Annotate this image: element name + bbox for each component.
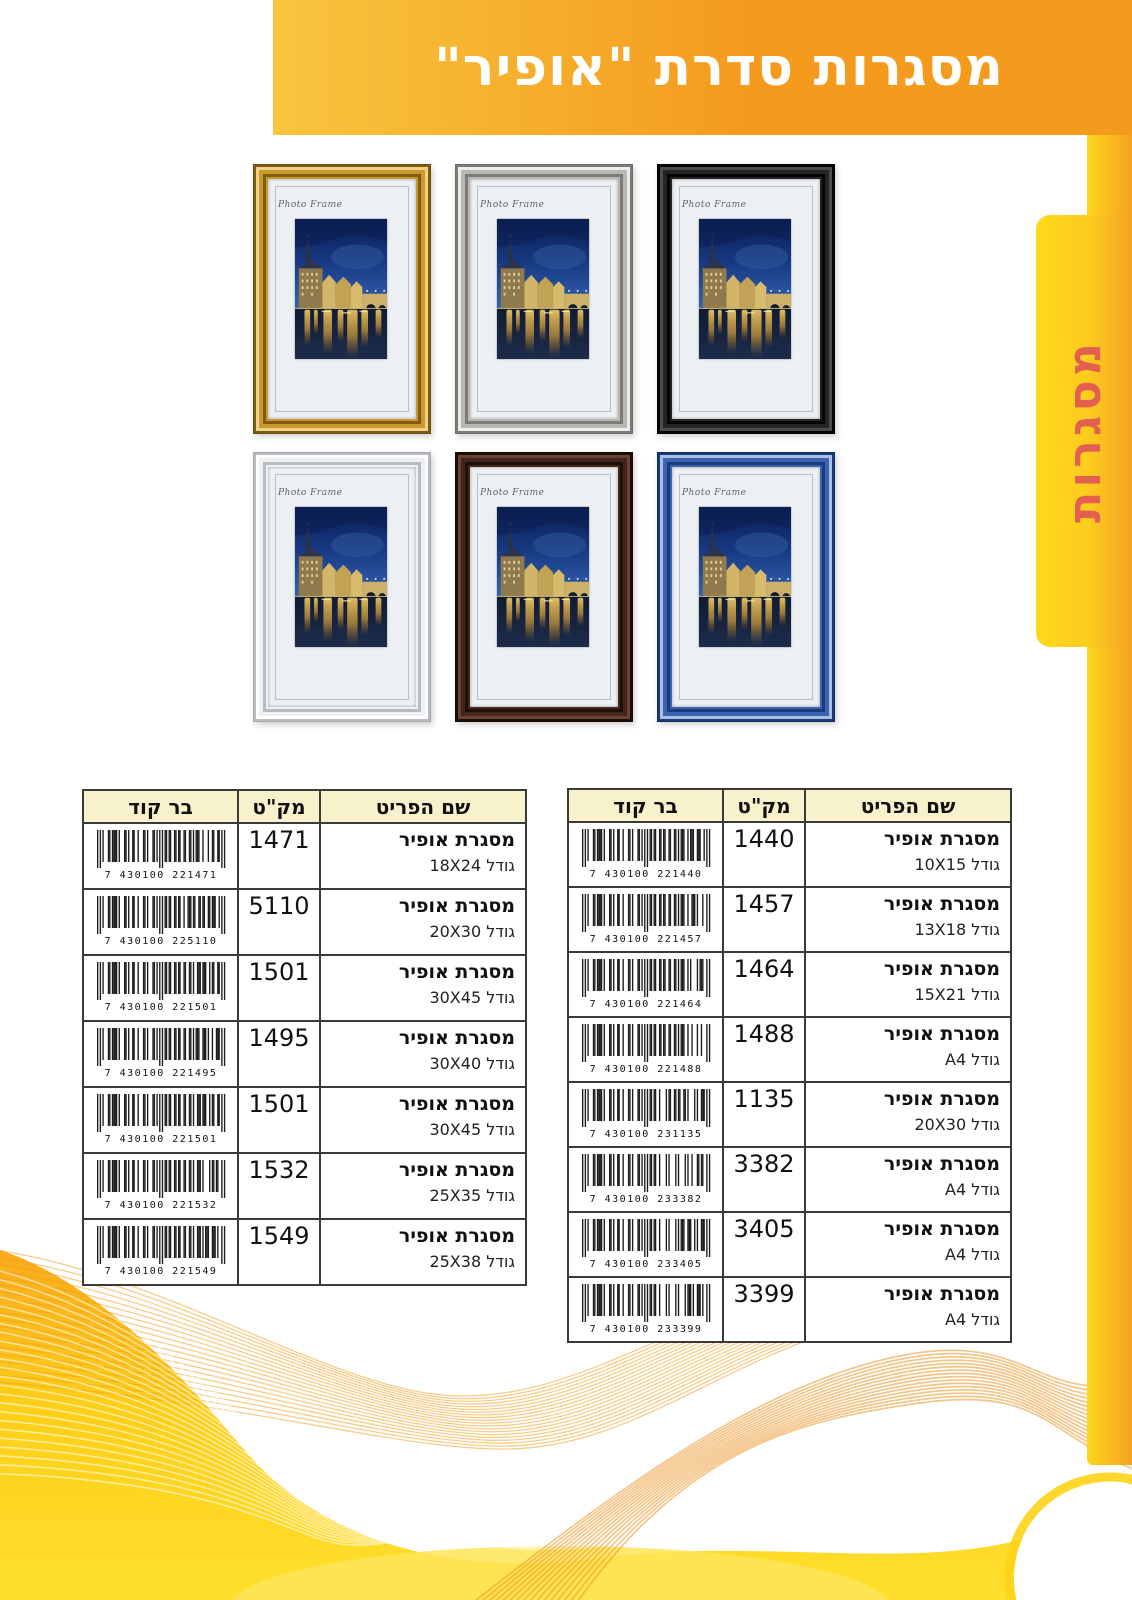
frame-photo-wrap: [295, 507, 387, 647]
barcode-image: 7 430100 231135: [579, 1087, 713, 1139]
wave-line: [0, 1416, 1132, 1536]
barcode-cell: 7 430100 221495: [83, 1021, 238, 1087]
item-size: גודל 25X38: [323, 1252, 515, 1271]
col-header-item: שם הפריט: [320, 790, 526, 823]
category-tab: מסגרות: [1036, 215, 1132, 647]
products-table-left: שם הפריטמק"טבר קודמסגרת אופירגודל 18X241…: [82, 789, 527, 1286]
svg-text:7 430100 221495: 7 430100 221495: [104, 1068, 217, 1078]
svg-text:7 430100 221501: 7 430100 221501: [104, 1002, 217, 1012]
wave-line: [561, 1393, 1132, 1600]
frame-photo: [497, 507, 589, 647]
wave-line: [0, 1383, 1132, 1535]
item-size: גודל A4: [808, 1050, 1000, 1069]
wave-line: [505, 1367, 1132, 1600]
table-row: מסגרת אופירגודל 10X151440 7 430100 22144…: [568, 822, 1011, 887]
frame-mat: Photo Frame: [268, 467, 416, 707]
svg-text:7 430100 221488: 7 430100 221488: [589, 1064, 702, 1074]
wave-line: [0, 1331, 824, 1446]
item-size: גודל 30X45: [323, 1120, 515, 1139]
frame-photo: [295, 507, 387, 647]
frame-photo-wrap: [295, 219, 387, 359]
sku-cell: 5110: [238, 889, 320, 955]
frame-mat: Photo Frame: [268, 179, 416, 419]
frames-gallery: Photo Frame Photo Frame: [253, 164, 838, 740]
frame-photo-wrap: [699, 507, 791, 647]
item-name-cell: מסגרת אופירגודל 13X18: [805, 887, 1011, 952]
table-row: מסגרת אופירגודל A43399 7 430100 233399: [568, 1277, 1011, 1342]
wave-line: [0, 1327, 818, 1440]
item-name: מסגרת אופיר: [808, 1153, 1000, 1177]
frame-row: Photo Frame Photo Frame: [253, 452, 838, 722]
item-size: גודל 20X30: [323, 922, 515, 941]
sku-cell: 3399: [723, 1277, 805, 1342]
barcode-image: 7 430100 221532: [94, 1158, 228, 1210]
table-header-row: שם הפריטמק"טבר קוד: [568, 789, 1011, 822]
table-header-row: שם הפריטמק"טבר קוד: [83, 790, 526, 823]
item-name: מסגרת אופיר: [808, 1218, 1000, 1242]
svg-text:7 430100 221549: 7 430100 221549: [104, 1266, 217, 1276]
wave-line: [0, 1356, 1132, 1536]
table-row: מסגרת אופירגודל 15X211464 7 430100 22146…: [568, 952, 1011, 1017]
barcode-cell: 7 430100 221532: [83, 1153, 238, 1219]
corner-notch: [1014, 1482, 1132, 1600]
wave-line: [0, 1404, 1132, 1543]
photo-frame-black: Photo Frame: [657, 164, 835, 434]
sku-cell: 1457: [723, 887, 805, 952]
item-name-cell: מסגרת אופירגודל A4: [805, 1277, 1011, 1342]
barcode-cell: 7 430100 221501: [83, 1087, 238, 1153]
item-name: מסגרת אופיר: [808, 828, 1000, 852]
barcode-image: 7 430100 233382: [579, 1152, 713, 1204]
corner-arc: [1009, 1477, 1132, 1600]
barcode-cell: 7 430100 221464: [568, 952, 723, 1017]
sku-cell: 3382: [723, 1147, 805, 1212]
item-name: מסגרת אופיר: [323, 1225, 515, 1249]
item-name-cell: מסגרת אופירגודל 18X24: [320, 823, 526, 889]
barcode-cell: 7 430100 225110: [83, 889, 238, 955]
frame-photo: [699, 219, 791, 359]
barcode-image: 7 430100 221501: [94, 1092, 228, 1144]
wave-line: [0, 1347, 1132, 1537]
sku-cell: 3405: [723, 1212, 805, 1277]
item-name: מסגרת אופיר: [323, 1093, 515, 1117]
item-size: גודל 30X40: [323, 1054, 515, 1073]
wave-line: [575, 1400, 1132, 1600]
sku-cell: 1471: [238, 823, 320, 889]
table-row: מסגרת אופירגודל 20X305110 7 430100 22511…: [83, 889, 526, 955]
frame-row: Photo Frame Photo Frame: [253, 164, 838, 434]
item-size: גודל A4: [808, 1245, 1000, 1264]
frame-mat: Photo Frame: [672, 467, 820, 707]
wave-line: [0, 1365, 1132, 1536]
item-size: גודל 10X15: [808, 855, 1000, 874]
frame-photo-wrap: [497, 507, 589, 647]
svg-text:7 430100 233399: 7 430100 233399: [589, 1324, 702, 1334]
wave-line: [519, 1373, 1132, 1600]
barcode-cell: 7 430100 233405: [568, 1212, 723, 1277]
table-row: מסגרת אופירגודל 30X451501 7 430100 22150…: [83, 1087, 526, 1153]
item-size: גודל 25X35: [323, 1186, 515, 1205]
barcode-image: 7 430100 221471: [94, 828, 228, 880]
item-name: מסגרת אופיר: [323, 961, 515, 985]
table-row: מסגרת אופירגודל 30X401495 7 430100 22149…: [83, 1021, 526, 1087]
barcode-cell: 7 430100 231135: [568, 1082, 723, 1147]
wave-line: [512, 1370, 1132, 1600]
frame-photo: [699, 507, 791, 647]
wave-line: [540, 1383, 1132, 1600]
svg-text:7 430100 221457: 7 430100 221457: [589, 934, 702, 944]
svg-text:7 430100 221464: 7 430100 221464: [589, 999, 702, 1009]
item-name-cell: מסגרת אופירגודל 25X38: [320, 1219, 526, 1285]
table-row: מסגרת אופירגודל 25X381549 7 430100 22154…: [83, 1219, 526, 1285]
svg-text:7 430100 231135: 7 430100 231135: [589, 1129, 702, 1139]
svg-text:7 430100 225110: 7 430100 225110: [104, 936, 217, 946]
sku-cell: 1501: [238, 955, 320, 1021]
barcode-cell: 7 430100 221457: [568, 887, 723, 952]
svg-text:7 430100 221471: 7 430100 221471: [104, 870, 217, 880]
table-row: מסגרת אופירגודל 13X181457 7 430100 22145…: [568, 887, 1011, 952]
wave-line: [0, 1329, 1132, 1539]
barcode-cell: 7 430100 221440: [568, 822, 723, 887]
wave-line: [568, 1396, 1132, 1600]
frame-mat: Photo Frame: [672, 179, 820, 419]
photo-frame-gold: Photo Frame: [253, 164, 431, 434]
products-table: שם הפריטמק"טבר קודמסגרת אופירגודל 18X241…: [82, 789, 527, 1286]
wave-line: [0, 1401, 1132, 1535]
photo-frame-label: Photo Frame: [682, 200, 746, 210]
wave-line: [0, 1401, 1132, 1545]
page-title: מסגרות סדרת "אופיר": [434, 37, 1004, 98]
frame-mat: Photo Frame: [470, 467, 618, 707]
photo-frame-label: Photo Frame: [480, 488, 544, 498]
wave-line: [0, 1333, 827, 1449]
wave-line: [498, 1363, 1132, 1600]
table-row: מסגרת אופירגודל 25X351532 7 430100 22153…: [83, 1153, 526, 1219]
wave-line: [547, 1386, 1132, 1600]
barcode-image: 7 430100 225110: [94, 894, 228, 946]
item-size: גודל 18X24: [323, 856, 515, 875]
sku-cell: 1501: [238, 1087, 320, 1153]
frame-photo: [497, 219, 589, 359]
barcode-image: 7 430100 221440: [579, 827, 713, 879]
item-size: גודל A4: [808, 1310, 1000, 1329]
photo-frame-label: Photo Frame: [278, 200, 342, 210]
item-name: מסגרת אופיר: [323, 895, 515, 919]
item-size: גודל 30X45: [323, 988, 515, 1007]
sku-cell: 1488: [723, 1017, 805, 1082]
item-size: גודל 13X18: [808, 920, 1000, 939]
item-name-cell: מסגרת אופירגודל 30X45: [320, 955, 526, 1021]
wave-line: [0, 1407, 1132, 1541]
table-row: מסגרת אופירגודל 20X301135 7 430100 23113…: [568, 1082, 1011, 1147]
sku-cell: 1440: [723, 822, 805, 887]
barcode-cell: 7 430100 233399: [568, 1277, 723, 1342]
wave-line: [491, 1360, 1132, 1600]
wave-line: [0, 1374, 1132, 1535]
item-size: גודל 15X21: [808, 985, 1000, 1004]
col-header-barcode: בר קוד: [83, 790, 238, 823]
svg-text:7 430100 221501: 7 430100 221501: [104, 1134, 217, 1144]
svg-text:7 430100 221532: 7 430100 221532: [104, 1200, 217, 1210]
svg-text:7 430100 233405: 7 430100 233405: [589, 1259, 702, 1269]
item-name-cell: מסגרת אופירגודל A4: [805, 1147, 1011, 1212]
col-header-sku: מק"ט: [723, 789, 805, 822]
barcode-cell: 7 430100 221471: [83, 823, 238, 889]
photo-frame-silver: Photo Frame: [455, 164, 633, 434]
wave-line: [0, 1329, 821, 1443]
wave-line: [0, 1413, 1132, 1538]
frame-photo: [295, 219, 387, 359]
svg-text:7 430100 221440: 7 430100 221440: [589, 869, 702, 879]
item-name-cell: מסגרת אופירגודל 30X40: [320, 1021, 526, 1087]
barcode-image: 7 430100 221501: [94, 960, 228, 1012]
photo-frame-blue: Photo Frame: [657, 452, 835, 722]
barcode-image: 7 430100 221488: [579, 1022, 713, 1074]
item-name-cell: מסגרת אופירגודל A4: [805, 1212, 1011, 1277]
barcode-image: 7 430100 221495: [94, 1026, 228, 1078]
sku-cell: 1135: [723, 1082, 805, 1147]
item-name-cell: מסגרת אופירגודל 20X30: [320, 889, 526, 955]
photo-frame-white: Photo Frame: [253, 452, 431, 722]
item-size: גודל 20X30: [808, 1115, 1000, 1134]
barcode-image: 7 430100 221549: [94, 1224, 228, 1276]
col-header-barcode: בר קוד: [568, 789, 723, 822]
item-size: גודל A4: [808, 1180, 1000, 1199]
svg-text:7 430100 233382: 7 430100 233382: [589, 1194, 702, 1204]
item-name-cell: מסגרת אופירגודל 15X21: [805, 952, 1011, 1017]
wave-line: [484, 1357, 1132, 1600]
wave-line: [0, 1392, 1132, 1534]
wave-line: [0, 1320, 1132, 1540]
item-name-cell: מסגרת אופירגודל 25X35: [320, 1153, 526, 1219]
item-name-cell: מסגרת אופירגודל 20X30: [805, 1082, 1011, 1147]
products-table-right: שם הפריטמק"טבר קודמסגרת אופירגודל 10X151…: [567, 788, 1012, 1343]
photo-frame-label: Photo Frame: [682, 488, 746, 498]
barcode-cell: 7 430100 221488: [568, 1017, 723, 1082]
wave-line: [0, 1419, 1132, 1535]
barcode-image: 7 430100 233405: [579, 1217, 713, 1269]
products-table: שם הפריטמק"טבר קודמסגרת אופירגודל 10X151…: [567, 788, 1012, 1343]
photo-frame-label: Photo Frame: [278, 488, 342, 498]
barcode-image: 7 430100 221457: [579, 892, 713, 944]
table-row: מסגרת אופירגודל A43405 7 430100 233405: [568, 1212, 1011, 1277]
sku-cell: 1464: [723, 952, 805, 1017]
wave-line: [0, 1338, 1132, 1538]
item-name-cell: מסגרת אופירגודל 10X15: [805, 822, 1011, 887]
item-name: מסגרת אופיר: [808, 958, 1000, 982]
sku-cell: 1532: [238, 1153, 320, 1219]
table-row: מסגרת אופירגודל 30X451501 7 430100 22150…: [83, 955, 526, 1021]
table-row: מסגרת אופירגודל 18X241471 7 430100 22147…: [83, 823, 526, 889]
table-row: מסגרת אופירגודל A43382 7 430100 233382: [568, 1147, 1011, 1212]
wave-line: [526, 1377, 1132, 1600]
item-name: מסגרת אופיר: [323, 829, 515, 853]
wave-line: [554, 1390, 1132, 1600]
wave-line: [533, 1380, 1132, 1600]
sku-cell: 1495: [238, 1021, 320, 1087]
barcode-cell: 7 430100 221501: [83, 955, 238, 1021]
wave-line: [477, 1354, 1132, 1600]
wave-line: [0, 1410, 1132, 1539]
item-name-cell: מסגרת אופירגודל A4: [805, 1017, 1011, 1082]
item-name: מסגרת אופיר: [323, 1027, 515, 1051]
photo-frame-brown: Photo Frame: [455, 452, 633, 722]
item-name-cell: מסגרת אופירגודל 30X45: [320, 1087, 526, 1153]
wave-line: [0, 1410, 1132, 1535]
barcode-image: 7 430100 233399: [579, 1282, 713, 1334]
barcode-cell: 7 430100 221549: [83, 1219, 238, 1285]
item-name: מסגרת אופיר: [808, 1023, 1000, 1047]
barcode-cell: 7 430100 233382: [568, 1147, 723, 1212]
table-row: מסגרת אופירגודל A41488 7 430100 221488: [568, 1017, 1011, 1082]
category-tab-label: מסגרות: [1057, 339, 1111, 523]
item-name: מסגרת אופיר: [808, 1283, 1000, 1307]
frame-photo-wrap: [497, 219, 589, 359]
item-name: מסגרת אופיר: [323, 1159, 515, 1183]
item-name: מסגרת אופיר: [808, 893, 1000, 917]
barcode-image: 7 430100 221464: [579, 957, 713, 1009]
col-header-sku: מק"ט: [238, 790, 320, 823]
photo-frame-label: Photo Frame: [480, 200, 544, 210]
col-header-item: שם הפריט: [805, 789, 1011, 822]
item-name: מסגרת אופיר: [808, 1088, 1000, 1112]
header-banner: מסגרות סדרת "אופיר": [273, 0, 1132, 135]
wave-line: [0, 1311, 1132, 1542]
frame-photo-wrap: [699, 219, 791, 359]
wave-line: [470, 1350, 1132, 1600]
frame-mat: Photo Frame: [470, 179, 618, 419]
wave-highlight: [230, 1546, 890, 1600]
sku-cell: 1549: [238, 1219, 320, 1285]
